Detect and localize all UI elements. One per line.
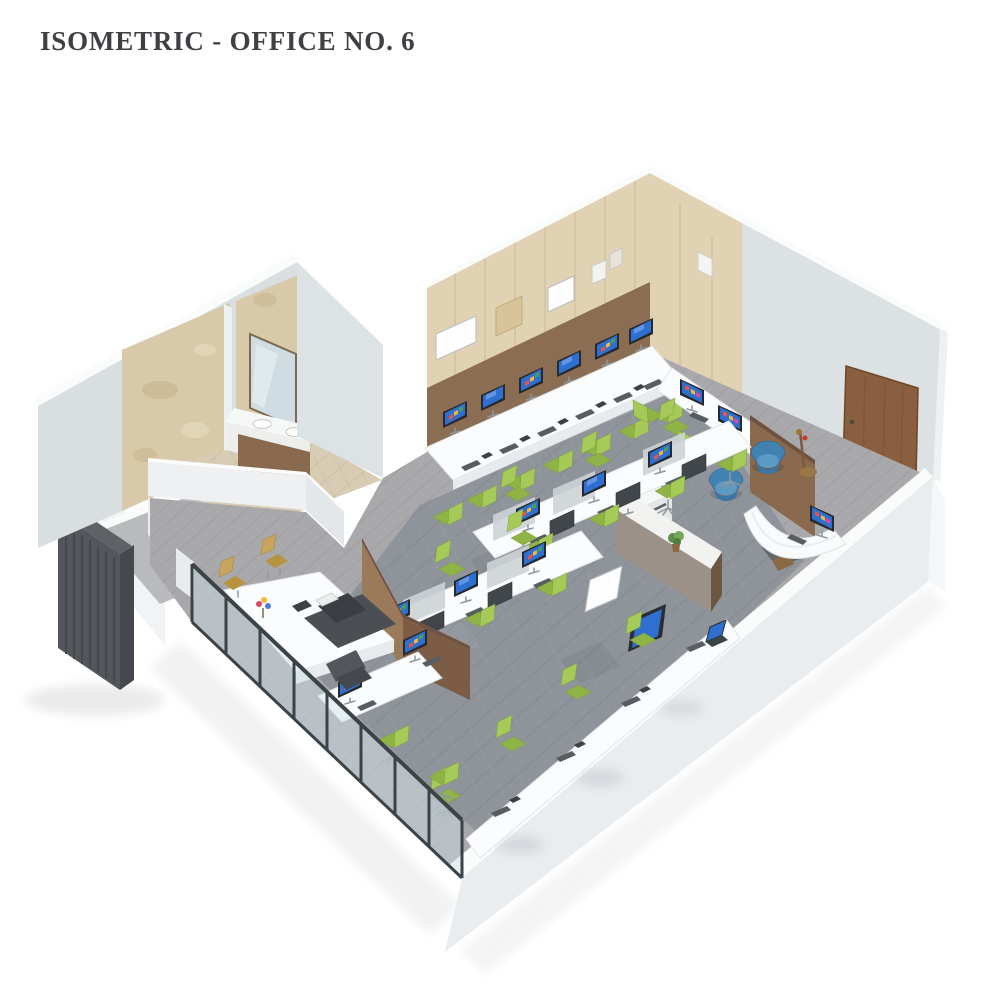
office-scene [0,0,1000,990]
isometric-office-render: ISOMETRIC - OFFICE NO. 6 [0,0,1000,990]
door-handle [850,420,855,425]
blue-tub-chair [751,441,785,474]
